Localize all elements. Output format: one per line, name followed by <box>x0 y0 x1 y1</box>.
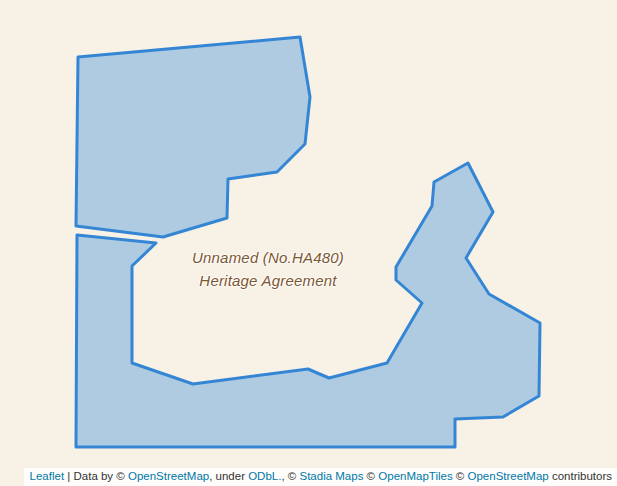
attribution-link[interactable]: OpenStreetMap <box>468 470 549 482</box>
attribution-link[interactable]: Stadia Maps <box>299 470 363 482</box>
attribution-link[interactable]: OpenStreetMap <box>128 470 209 482</box>
attribution-text-segment: contributors <box>549 470 612 482</box>
attribution-bar: Leaflet | Data by © OpenStreetMap, under… <box>24 468 617 486</box>
attribution-text-segment: © <box>363 470 378 482</box>
map[interactable]: Unnamed (No.HA480) Heritage Agreement Le… <box>0 0 617 486</box>
attribution-link[interactable]: ODbL. <box>248 470 281 482</box>
attribution-text-segment: , © <box>281 470 299 482</box>
attribution-text-segment: , under <box>209 470 248 482</box>
attribution-text-segment: | Data by © <box>64 470 128 482</box>
heritage-area-north-polygon[interactable] <box>76 37 310 237</box>
attribution-text-segment: © <box>453 470 468 482</box>
attribution-link[interactable]: OpenMapTiles <box>378 470 452 482</box>
attribution-link[interactable]: Leaflet <box>30 470 65 482</box>
map-canvas[interactable] <box>0 0 617 486</box>
attribution-text: Leaflet | Data by © OpenStreetMap, under… <box>30 470 612 482</box>
